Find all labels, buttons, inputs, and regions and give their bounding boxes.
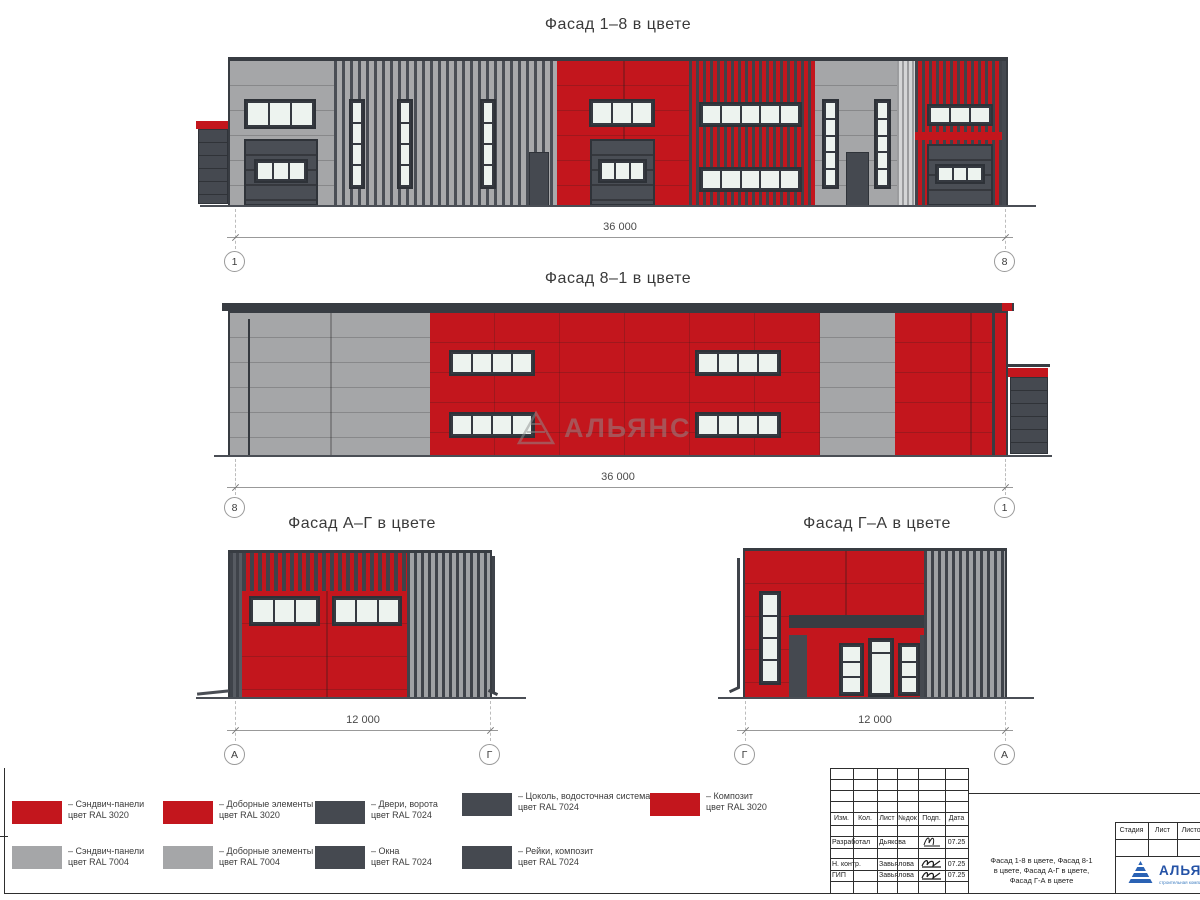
col-izm: Изм.	[830, 815, 853, 822]
legend-swatch	[163, 801, 213, 824]
col-sheets: Листов	[1177, 827, 1200, 834]
dimension-value: 12 000	[858, 714, 892, 726]
window	[249, 596, 320, 626]
annex-left	[198, 129, 228, 204]
facade-1-8-title: Фасад 1–8 в цвете	[545, 16, 691, 34]
row-role: ГИП	[832, 872, 846, 879]
frame-line	[4, 768, 5, 893]
window	[332, 596, 402, 626]
annex-red-band	[1008, 368, 1048, 377]
signature	[921, 834, 943, 847]
dimension-value: 36 000	[603, 221, 637, 233]
window	[839, 643, 864, 696]
panel-section	[820, 313, 895, 455]
gate-door	[590, 139, 655, 205]
canopy-red-band	[789, 628, 930, 635]
entrance-column	[789, 635, 807, 697]
dimension-value: 36 000	[601, 471, 635, 483]
facade-a-g-title: Фасад А–Г в цвете	[288, 515, 436, 533]
legend-swatch	[650, 793, 700, 816]
window	[695, 412, 781, 438]
legend-swatch	[12, 846, 62, 869]
legend-swatch	[163, 846, 213, 869]
extension-line	[1005, 459, 1006, 495]
row-name: Завьялова	[879, 872, 914, 879]
axis-circle: Г	[479, 744, 500, 765]
panel-section	[230, 313, 430, 455]
legend-label: – Сэндвич-панелицвет RAL 7004	[68, 846, 144, 868]
canopy	[789, 615, 930, 628]
slat-section	[334, 61, 557, 205]
legend-label: – Сэндвич-панелицвет RAL 3020	[68, 799, 144, 821]
extension-line	[235, 459, 236, 495]
col-ndoc: №док	[897, 815, 918, 822]
row-name: Дьякова	[879, 839, 906, 846]
col-podp: Подп.	[918, 815, 945, 822]
legend-label: – Цоколь, водосточная системацвет RAL 70…	[518, 791, 650, 813]
facade-a-g-drawing	[228, 550, 492, 697]
door	[846, 152, 869, 205]
facade-1-8-drawing	[228, 57, 1008, 205]
window	[695, 350, 781, 376]
window	[397, 99, 413, 189]
downspout	[248, 319, 250, 455]
col-kol: Кол.	[853, 815, 877, 822]
legend-swatch	[462, 793, 512, 816]
panel-section	[895, 313, 992, 455]
axis-circle: 8	[224, 497, 245, 518]
dimension-line	[227, 730, 498, 731]
col-list: Лист	[877, 815, 897, 822]
legend-label: – Доборные элементыцвет RAL 7004	[219, 846, 313, 868]
downspout-elbow	[729, 686, 740, 693]
drawing-sheet: { "facades": { "f18": {"title": "Фасад 1…	[0, 0, 1200, 900]
signature	[920, 858, 944, 869]
extension-line	[1005, 209, 1006, 249]
window	[449, 350, 535, 376]
row-role: Н. контр.	[832, 861, 861, 868]
row-date: 07.25	[945, 861, 968, 868]
axis-circle: А	[994, 744, 1015, 765]
window	[822, 99, 839, 189]
transition-strip	[897, 61, 915, 205]
ground-line	[196, 697, 526, 699]
window	[759, 591, 781, 685]
parapet-red-cap	[1002, 303, 1012, 311]
legend-swatch	[315, 846, 365, 869]
slat-section	[407, 553, 492, 697]
dimension-line	[737, 730, 1013, 731]
window	[244, 99, 316, 129]
col-stage: Стадия	[1115, 827, 1148, 834]
annex-right	[1010, 377, 1048, 454]
ground-line	[200, 205, 1036, 207]
gate-window	[935, 164, 985, 184]
extension-line	[235, 701, 236, 741]
extension-line	[1005, 701, 1006, 741]
ground-line	[718, 697, 1034, 699]
dimension-line	[227, 487, 1013, 488]
col-sheet: Лист	[1148, 827, 1177, 834]
facade-g-a-title: Фасад Г–А в цвете	[803, 515, 951, 533]
dark-slat-strip	[230, 553, 242, 697]
parapet	[222, 303, 1014, 311]
red-slat-band	[242, 553, 407, 591]
ground-line	[214, 455, 1052, 457]
extension-line	[490, 701, 491, 741]
gate-door	[927, 144, 993, 205]
panel-edge	[992, 313, 1008, 455]
legend-label: – Окнацвет RAL 7024	[371, 846, 432, 868]
gate-window	[254, 159, 308, 183]
row-role: Разработал	[832, 839, 870, 846]
window	[898, 643, 920, 696]
dimension-value: 12 000	[346, 714, 380, 726]
logo-subtext: строительная компания	[1159, 880, 1200, 885]
annex-roof	[1006, 364, 1050, 367]
legend-label: – Композитцвет RAL 3020	[706, 791, 767, 813]
extension-line	[745, 701, 746, 741]
axis-circle: 1	[994, 497, 1015, 518]
axis-circle: 8	[994, 251, 1015, 272]
strip-window	[699, 102, 802, 127]
frame-tick	[0, 836, 8, 837]
strip-window	[927, 104, 993, 126]
red-band	[915, 132, 1002, 140]
legend-swatch	[315, 801, 365, 824]
legend-swatch	[462, 846, 512, 869]
extension-line	[235, 209, 236, 249]
frame-line	[4, 893, 1200, 894]
watermark: АЛЬЯНС	[516, 410, 692, 446]
entrance-door	[868, 638, 894, 697]
gate-window	[598, 159, 647, 183]
axis-circle: Г	[734, 744, 755, 765]
legend-label: – Рейки, композитцвет RAL 7024	[518, 846, 593, 868]
axis-circle: 1	[224, 251, 245, 272]
gate-door	[244, 139, 318, 205]
row-date: 07.25	[945, 839, 968, 846]
facade-g-a-drawing	[743, 548, 1007, 697]
logo-triangle-icon	[1128, 861, 1153, 884]
annex-red-band	[196, 121, 230, 129]
window	[589, 99, 655, 127]
row-name: Завьялова	[879, 861, 914, 868]
legend-label: – Двери, воротацвет RAL 7024	[371, 799, 438, 821]
downspout	[737, 558, 740, 688]
window	[480, 99, 496, 189]
row-date: 07.25	[945, 872, 968, 879]
legend-swatch	[12, 801, 62, 824]
slat-section	[924, 551, 1007, 697]
watermark-triangle-icon	[516, 410, 556, 446]
dimension-line	[227, 237, 1013, 238]
legend-label: – Доборные элементыцвет RAL 3020	[219, 799, 313, 821]
downspout	[492, 556, 495, 692]
watermark-text: АЛЬЯНС	[564, 413, 692, 444]
document-title: Фасад 1-8 в цвете, Фасад 8-1 в цвете, Фа…	[968, 850, 1115, 892]
strip-window	[699, 167, 802, 192]
signature	[920, 870, 944, 881]
door	[529, 152, 549, 205]
col-data: Дата	[945, 815, 968, 822]
window	[349, 99, 365, 189]
dark-edge	[1002, 61, 1008, 205]
facade-8-1-title: Фасад 8–1 в цвете	[545, 270, 691, 288]
axis-circle: А	[224, 744, 245, 765]
window	[874, 99, 891, 189]
logo-text: АЛЬЯНС	[1159, 863, 1200, 878]
ramp	[197, 689, 229, 695]
